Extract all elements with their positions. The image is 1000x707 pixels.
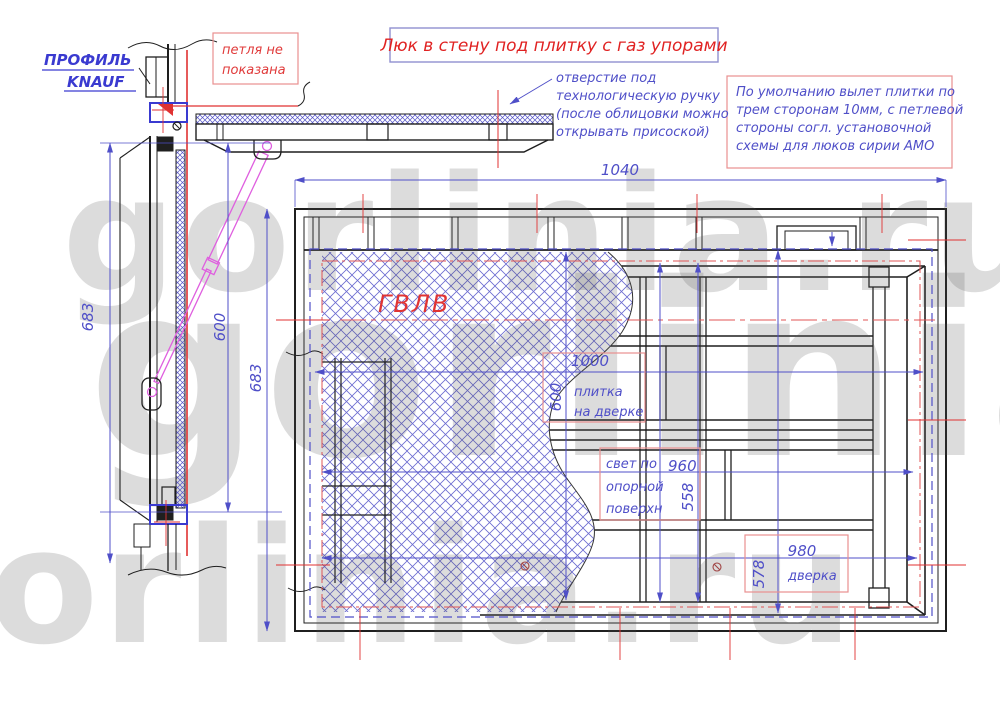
dim-clear-width: 960 — [668, 457, 697, 475]
hatch-technical-drawing: gorlinia.ru gorlinia.ru gorlinia.ru — [0, 0, 1000, 707]
profile-label-line1: ПРОФИЛЬ — [44, 51, 132, 69]
clear-label-line1: свет по — [606, 457, 657, 472]
default-note-line1: По умолчанию вылет плитки по — [736, 85, 955, 100]
clear-label-line3: поверхн — [606, 502, 663, 517]
knauf-profile-bracket — [146, 57, 168, 97]
default-note-line3: стороны согл. установочной — [736, 121, 931, 136]
drawing-canvas: gorlinia.ru gorlinia.ru gorlinia.ru — [0, 0, 1000, 707]
handle-note-line1: отверстие под — [556, 71, 656, 86]
dim-door-width: 980 — [788, 542, 817, 560]
dim-front-height: 683 — [247, 364, 265, 393]
default-note-line4: схемы для люков сирии АМО — [736, 139, 934, 154]
flap-tile-strip — [196, 114, 553, 124]
dim-tile-width: 1000 — [571, 352, 609, 370]
clear-label-line2: опорной — [606, 480, 664, 495]
tile-label-line2: на дверке — [574, 405, 643, 420]
drawing-title: Люк в стену под плитку с газ упорами — [379, 36, 727, 56]
profile-label-line2: KNAUF — [67, 73, 125, 91]
material-label: ГВЛВ — [378, 290, 450, 318]
hinge-note-line2: показана — [222, 63, 286, 78]
handle-note-line2: технологическую ручку — [556, 89, 720, 104]
dim-side-opening: 600 — [211, 313, 229, 342]
hinge-note-line1: петля не — [222, 43, 283, 58]
watermark-text-bottom: gorlinia.ru — [0, 493, 857, 680]
dim-clear-height: 558 — [679, 483, 697, 512]
door-label: дверка — [787, 569, 837, 584]
handle-leader-arrow — [510, 79, 552, 104]
dim-door-height: 578 — [750, 560, 768, 589]
dim-side-height: 683 — [79, 303, 97, 332]
tile-label-line1: плитка — [574, 385, 623, 400]
handle-note-line3: (после облицовки можно — [556, 107, 729, 122]
default-note-line2: трем сторонам 10мм, с петлевой — [736, 103, 963, 118]
handle-note-line4: открывать присоской) — [556, 125, 710, 140]
dim-overall-width: 1040 — [601, 161, 639, 179]
dim-tile-height: 600 — [547, 383, 565, 412]
